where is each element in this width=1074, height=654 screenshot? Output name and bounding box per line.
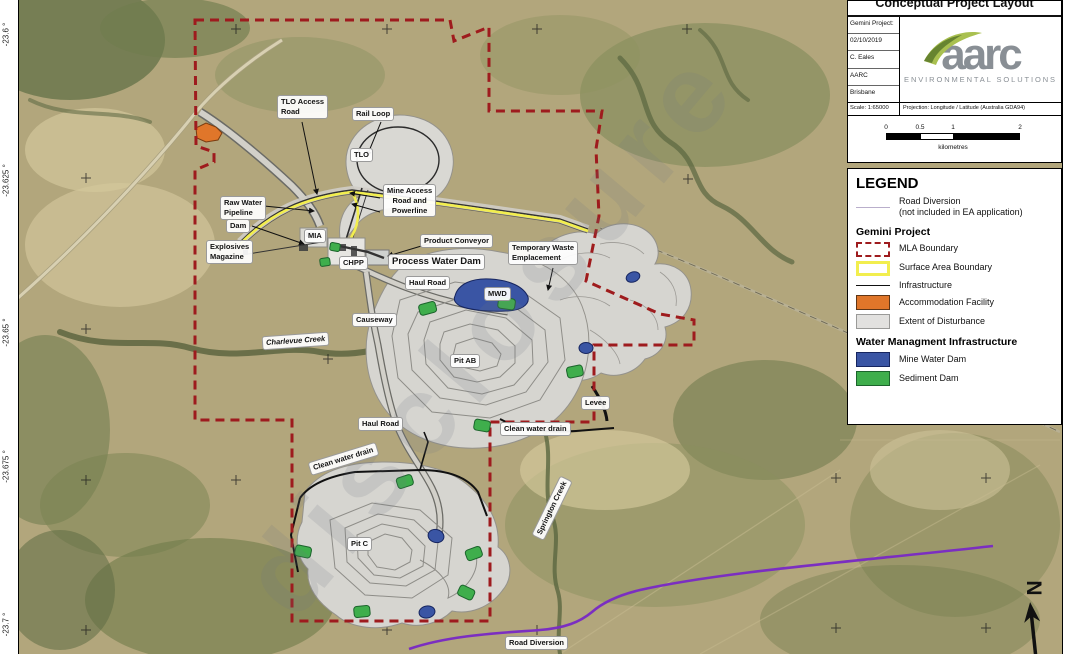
mine-water-dam-swatch: [856, 352, 890, 367]
map-projection: Projection: Longitude / Latitude (Austra…: [900, 103, 1061, 115]
disturbance-label: Extent of Disturbance: [899, 316, 985, 327]
label-process-water-dam: Process Water Dam: [388, 254, 485, 270]
legend-item-disturbance: Extent of Disturbance: [856, 314, 1053, 329]
legend-item-surface-area: Surface Area Boundary: [856, 261, 1053, 276]
lat-label-4: -23.675 °: [2, 437, 11, 497]
label-haul-road-north: Haul Road: [405, 276, 450, 290]
label-levee: Levee: [581, 396, 610, 410]
north-letter: N: [1021, 567, 1045, 609]
title-block: Conceptual Project Layout Gemini Project…: [847, 0, 1062, 163]
legend-item-road-diversion: Road Diversion (not included in EA appli…: [856, 196, 1053, 219]
surface-area-label: Surface Area Boundary: [899, 262, 992, 273]
lat-label-2: -23.625 °: [2, 151, 11, 211]
surface-area-swatch: [856, 261, 890, 276]
project-name: Gemini Project:: [848, 17, 899, 34]
scale-tick-0: 0: [884, 124, 888, 131]
label-raw-water-pipeline: Raw Water Pipeline: [220, 196, 266, 220]
legend-section-water-management: Water Managment Infrastructure: [856, 336, 1053, 348]
legend-item-mla-boundary: MLA Boundary: [856, 242, 1053, 257]
legend-item-accommodation: Accommodation Facility: [856, 295, 1053, 310]
mine-water-dam-label: Mine Water Dam: [899, 354, 966, 365]
label-pit-c: Pit C: [347, 537, 372, 551]
label-mwd: MWD: [484, 287, 511, 301]
label-chpp: CHPP: [339, 256, 368, 270]
map-author: C. Eales: [848, 51, 899, 68]
scale-bar-segments: [886, 133, 1020, 140]
legend-item-infrastructure: Infrastructure: [856, 280, 1053, 291]
sediment-dam-label: Sediment Dam: [899, 373, 959, 384]
map-sheet: disclosure TLO Access Road Rail Loop TLO…: [0, 0, 1074, 654]
legend-item-sediment-dam: Sediment Dam: [856, 371, 1053, 386]
latitude-margin: -23.6 ° -23.625 ° -23.65 ° -23.675 ° -23…: [0, 0, 19, 654]
map-company: AARC: [848, 69, 899, 86]
legend-panel: LEGEND Road Diversion (not included in E…: [847, 168, 1062, 425]
map-date: 02/10/2019: [848, 34, 899, 51]
disturbance-swatch: [856, 314, 890, 329]
accommodation-swatch: [856, 295, 890, 310]
map-scale: Scale: 1:65000: [848, 103, 900, 115]
scale-bar-unit: kilometres: [886, 144, 1020, 151]
map-title-bar: Conceptual Project Layout: [848, 1, 1061, 17]
north-arrow: N: [1012, 576, 1054, 654]
label-haul-road-south: Haul Road: [358, 417, 403, 431]
lat-label-5: -23.7 °: [2, 595, 11, 654]
mla-boundary-label: MLA Boundary: [899, 243, 958, 254]
accommodation-label: Accommodation Facility: [899, 297, 994, 308]
label-causeway: Causeway: [352, 313, 397, 327]
label-tlo: TLO: [350, 148, 373, 162]
sediment-dam-swatch: [856, 371, 890, 386]
road-diversion-label: Road Diversion (not included in EA appli…: [899, 196, 1023, 219]
label-pit-ab: Pit AB: [450, 354, 480, 368]
label-mia: MIA: [304, 229, 326, 243]
infrastructure-label: Infrastructure: [899, 280, 952, 291]
scale-tick-05: 0.5: [915, 124, 924, 131]
mla-boundary-swatch: [856, 242, 890, 257]
label-rail-loop: Rail Loop: [352, 107, 394, 121]
legend-item-mine-water-dam: Mine Water Dam: [856, 352, 1053, 367]
scale-tick-2: 2: [1018, 124, 1022, 131]
label-product-conveyor: Product Conveyor: [420, 234, 493, 248]
map-title: Conceptual Project Layout: [848, 1, 1061, 12]
right-margin: [1062, 0, 1074, 654]
scale-bar: 0 0.5 1 2 kilometres: [848, 116, 1061, 162]
map-office: Brisbane: [848, 86, 899, 102]
aarc-logo-tagline: ENVIRONMENTAL SOLUTIONS: [904, 75, 1057, 84]
lat-label-3: -23.65 °: [2, 303, 11, 363]
label-explosives-magazine: Explosives Magazine: [206, 240, 253, 264]
label-clean-water-drain-east: Clean water drain: [500, 422, 571, 436]
label-temporary-waste-emplacement: Temporary Waste Emplacement: [508, 241, 578, 265]
road-diversion-swatch: [856, 207, 890, 208]
label-tlo-access-road: TLO Access Road: [277, 95, 328, 119]
legend-section-gemini-project: Gemini Project: [856, 226, 1053, 238]
label-road-diversion: Road Diversion: [505, 636, 568, 650]
legend-heading: LEGEND: [856, 175, 1053, 192]
label-dam: Dam: [226, 219, 250, 233]
aarc-logo: aarc ENVIRONMENTAL SOLUTIONS: [900, 17, 1061, 102]
aarc-leaf-icon: [922, 29, 984, 69]
label-mine-access-road: Mine Access Road and Powerline: [383, 184, 436, 217]
infrastructure-swatch: [856, 285, 890, 286]
scale-tick-1: 1: [951, 124, 955, 131]
lat-label-1: -23.6 °: [2, 5, 11, 65]
title-block-info-column: Gemini Project: 02/10/2019 C. Eales AARC…: [848, 17, 900, 102]
